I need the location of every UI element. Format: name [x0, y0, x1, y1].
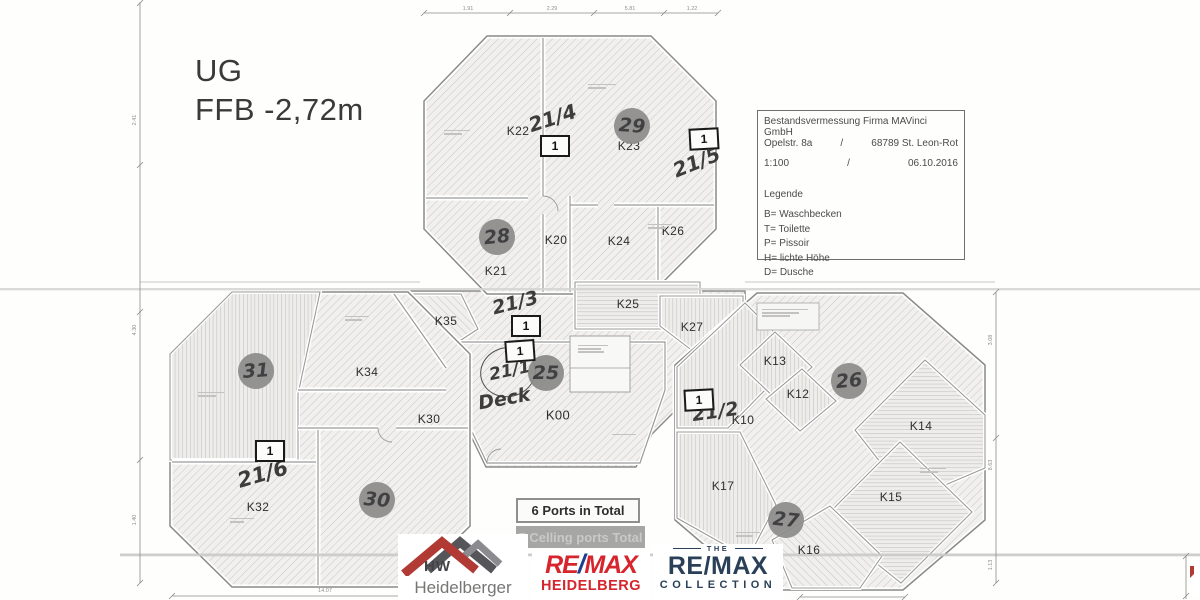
legend-item-waschbecken: B= Waschbecken — [764, 209, 958, 222]
room-label-k27: K27 — [681, 320, 704, 334]
port-marker-1-center-upper: 1 — [511, 315, 541, 337]
remax-heidelberg-logo: RE/MAX HEIDELBERG — [532, 551, 650, 600]
port-circle-28-number: 28 — [483, 225, 512, 250]
port-marker-value: 1 — [695, 393, 702, 407]
collection-name: COLLECTION — [653, 579, 783, 591]
dim-label: 4.30 — [132, 325, 138, 336]
dim-label: 14.07 — [318, 588, 332, 594]
partial-logo-sliver — [1190, 560, 1200, 596]
address-city: 68789 St. Leon-Rot — [871, 138, 958, 149]
dim-label: 8.63 — [988, 460, 994, 471]
port-circle-31-number: 31 — [242, 359, 270, 383]
remax-city: HEIDELBERG — [532, 578, 650, 594]
dim-label: 5.81 — [625, 6, 636, 12]
illegible-note — [230, 516, 254, 524]
illegible-note — [648, 222, 672, 230]
port-marker-value: 1 — [516, 344, 524, 358]
room-label-k30: K30 — [418, 412, 441, 426]
port-circle-27-number: 27 — [772, 508, 801, 533]
surveyor-line: Bestandsvermessung Firma MAVinci GmbH — [764, 116, 958, 138]
port-marker-value: 1 — [700, 132, 707, 146]
legend-item-dusche: D= Dusche — [764, 267, 958, 280]
collection-wordmark: RE/MAX — [653, 553, 783, 579]
room-label-k25: K25 — [617, 297, 640, 311]
illegible-note — [762, 307, 808, 319]
port-circle-30-number: 30 — [363, 488, 391, 512]
dim-label: 2.29 — [547, 6, 558, 12]
legend-item-pissoir: P= Pissoir — [764, 238, 958, 251]
room-label-k12: K12 — [787, 387, 810, 401]
hw-heidelberger-logo: HW Heidelberger — [398, 534, 528, 600]
remax-re: RE — [545, 551, 578, 579]
remax-collection-logo: THE RE/MAX COLLECTION — [653, 544, 783, 600]
port-marker-1-top-left: 1 — [540, 135, 570, 157]
port-circle-29-number: 29 — [618, 114, 646, 138]
floor-level-label: UG — [195, 52, 364, 91]
dim-label: 3.08 — [988, 335, 994, 346]
room-label-k00: K00 — [546, 408, 570, 423]
remax-max: MAX — [584, 551, 637, 579]
ports-total-box: 6 Ports in Total — [516, 498, 640, 523]
room-label-k15: K15 — [880, 490, 903, 504]
dim-label: 1.40 — [132, 515, 138, 526]
ceiling-ports-total-label: 7 Celling ports Total — [519, 530, 643, 545]
room-label-k32: K32 — [247, 500, 270, 514]
legend-item-toilette: T= Toilette — [764, 224, 958, 237]
port-marker-value: 1 — [267, 444, 274, 458]
illegible-note — [198, 390, 224, 398]
address-street: Opelstr. 8a — [764, 138, 812, 149]
page-title: UG FFB -2,72m — [195, 52, 364, 130]
date-value: 06.10.2016 — [908, 158, 958, 169]
room-label-k14: K14 — [910, 419, 933, 433]
address-separator: / — [840, 138, 843, 149]
hw-initials: HW — [424, 558, 451, 575]
illegible-note — [920, 466, 946, 474]
room-label-k21: K21 — [485, 264, 508, 278]
ports-total-label: 6 Ports in Total — [532, 503, 625, 518]
room-label-k22: K22 — [507, 124, 530, 138]
port-marker-value: 1 — [523, 319, 530, 333]
port-marker-1-top-right: 1 — [688, 127, 719, 151]
floor-elevation-label: FFB -2,72m — [195, 91, 364, 130]
dim-label: 1.91 — [463, 6, 474, 12]
dim-label: 1.13 — [988, 560, 994, 571]
hw-roof-icon — [398, 534, 528, 576]
room-label-k17: K17 — [712, 479, 735, 493]
title-block: Bestandsvermessung Firma MAVinci GmbH Op… — [757, 110, 965, 260]
legend-title: Legende — [764, 189, 958, 200]
room-label-k35: K35 — [435, 314, 458, 328]
port-circle-26-number: 26 — [835, 369, 863, 393]
scale-value: 1:100 — [764, 158, 789, 169]
scale-separator: / — [847, 158, 850, 169]
stair-note — [578, 343, 608, 355]
remax-wordmark: RE/MAX — [532, 551, 650, 578]
floor-plan-page: UG FFB -2,72m Bestandsvermessung Firma M… — [0, 0, 1200, 600]
dim-label: 2.41 — [132, 115, 138, 126]
port-marker-1-right-octagon: 1 — [683, 388, 714, 412]
port-marker-value: 1 — [552, 139, 559, 153]
port-marker-1-center-lower: 1 — [504, 339, 535, 363]
illegible-note — [612, 432, 636, 437]
port-marker-1-left-octagon: 1 — [255, 440, 285, 462]
illegible-note — [345, 314, 369, 322]
illegible-note — [736, 530, 760, 538]
room-label-k20: K20 — [545, 233, 568, 247]
ceiling-ports-total-box: 7 Celling ports Total — [516, 526, 645, 548]
scale-date-row: 1:100 / 06.10.2016 — [764, 158, 958, 169]
room-label-k16: K16 — [798, 543, 821, 557]
legend-item-lichte-hoehe: H= lichte Höhe — [764, 253, 958, 266]
room-label-k24: K24 — [608, 234, 631, 248]
hw-name: Heidelberger — [398, 578, 528, 598]
port-circle-25-number: 25 — [533, 362, 559, 384]
illegible-note — [588, 82, 616, 90]
room-label-k13: K13 — [764, 354, 787, 368]
room-label-k34: K34 — [356, 365, 379, 379]
illegible-note — [444, 128, 470, 136]
dim-label: 1.22 — [687, 6, 698, 12]
address-row: Opelstr. 8a / 68789 St. Leon-Rot — [764, 138, 958, 149]
